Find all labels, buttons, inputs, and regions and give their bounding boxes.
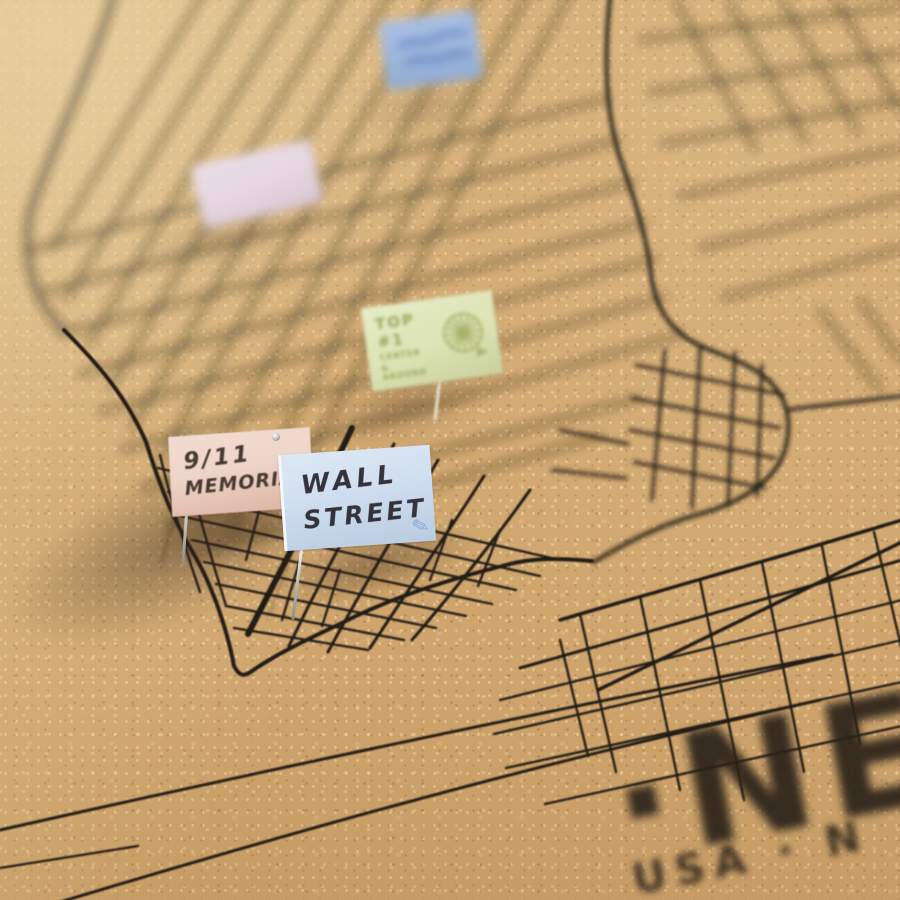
flag-note-blue-blurred (379, 10, 484, 91)
pushpin-head (272, 433, 280, 441)
pencil-icon: ✎ (409, 512, 432, 540)
top1-title: TOP #1 (374, 308, 434, 351)
handwriting-scribble (379, 10, 484, 91)
cork-map-photo: ·NE USA · N TOP #1 CENTER & AROUND (0, 0, 900, 900)
wall-street-line2: STREET (302, 493, 427, 535)
wheel-icon (436, 305, 495, 368)
flag-wall-street: WALL STREET ✎ (278, 445, 436, 551)
east-river-shoreline (552, 0, 900, 562)
